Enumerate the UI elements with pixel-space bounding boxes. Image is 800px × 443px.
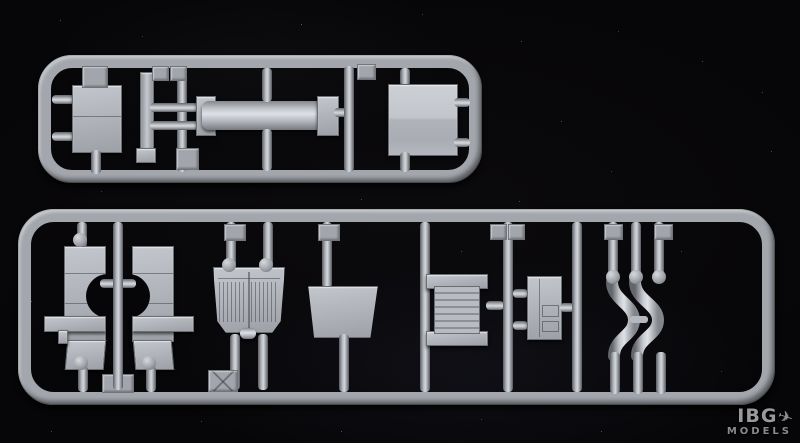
- sprue-gate: [629, 270, 643, 284]
- runner-stub: [513, 321, 528, 330]
- part-number-tag: [490, 224, 507, 240]
- runner-stub: [91, 150, 101, 174]
- runner-stub: [258, 334, 268, 390]
- part-number-tag: [508, 224, 525, 240]
- runner-stub: [656, 352, 666, 394]
- rectangular-plate-part: [72, 85, 122, 153]
- runner-stub: [486, 301, 504, 310]
- watermark-sub: MODELS: [727, 427, 792, 437]
- part-number-tag: [604, 224, 623, 240]
- deck-cylinder-detail: [240, 328, 256, 339]
- runner-vertical: [572, 222, 582, 392]
- sprue-gate: [74, 356, 88, 370]
- sprue-gate: [259, 258, 273, 272]
- runner-vertical: [503, 222, 513, 392]
- runner-stub: [339, 334, 349, 392]
- watermark: IBG✈ MODELS: [727, 407, 792, 437]
- runner-stub: [262, 129, 272, 171]
- part-number-tag: [170, 66, 187, 81]
- sprue-gate: [73, 233, 87, 247]
- runner-vertical: [420, 222, 430, 392]
- runner-stub: [454, 138, 470, 147]
- watermark-brand: IBG: [737, 405, 777, 427]
- sprue-gate: [652, 270, 666, 284]
- runner-stub: [633, 352, 643, 394]
- runner-stub: [262, 68, 272, 102]
- engine-deck-grille-part: [213, 267, 285, 333]
- runner-vertical: [344, 66, 354, 172]
- sprue-gate: [606, 270, 620, 284]
- hull-side-left-bar: [44, 316, 106, 332]
- dust-specks: [0, 0, 1, 1]
- runner-stub: [400, 152, 410, 172]
- runner-vertical: [113, 222, 123, 390]
- part-number-tag-x: [208, 370, 238, 392]
- radiator-ribbed-web: [434, 286, 480, 334]
- part-number-tag: [357, 64, 376, 80]
- part-number-tag: [82, 66, 108, 88]
- hull-side-right-bar: [132, 316, 194, 332]
- runner-stub: [150, 103, 202, 112]
- thin-strip-part: [140, 72, 154, 156]
- sprue-photo: IBG✈ MODELS: [0, 0, 800, 443]
- hatch-panel-part: [527, 276, 562, 340]
- runner-stub: [150, 121, 202, 130]
- runner-stub: [513, 289, 528, 298]
- runner-stub: [610, 352, 620, 394]
- latch-detail: [58, 330, 68, 344]
- part-number-tag: [318, 224, 340, 241]
- part-number-tag: [224, 224, 246, 241]
- sprue-gate: [142, 356, 156, 370]
- square-bent-plate-part: [388, 84, 458, 156]
- part-number-tag: [654, 224, 673, 240]
- part-number-tag: [176, 148, 199, 170]
- runner-stub: [454, 98, 470, 107]
- trapezoid-plate-part: [306, 286, 380, 338]
- airplane-icon: ✈: [776, 408, 796, 427]
- cylindrical-beam-part: [202, 101, 330, 130]
- sprue-gate: [222, 258, 236, 272]
- thin-strip-foot: [136, 148, 156, 163]
- curved-fender-pair-part: [600, 278, 680, 360]
- part-number-tag: [152, 66, 169, 81]
